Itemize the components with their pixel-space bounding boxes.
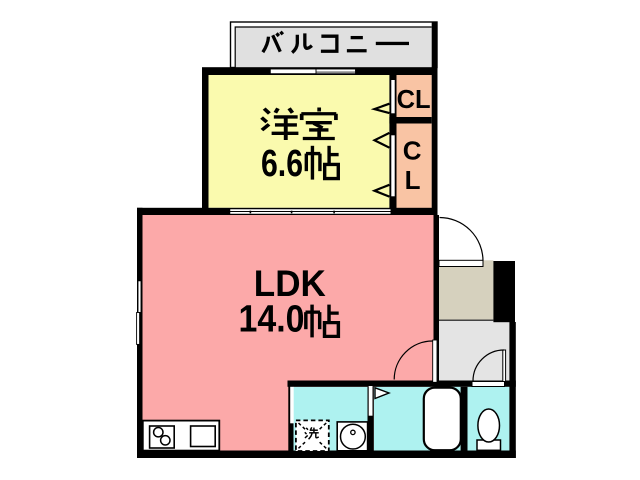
svg-text:L: L <box>405 165 421 195</box>
svg-text:CL: CL <box>397 86 431 114</box>
svg-text:6.6: 6.6 <box>261 143 303 185</box>
svg-text:C: C <box>403 136 422 166</box>
svg-text:14.0: 14.0 <box>239 299 305 341</box>
